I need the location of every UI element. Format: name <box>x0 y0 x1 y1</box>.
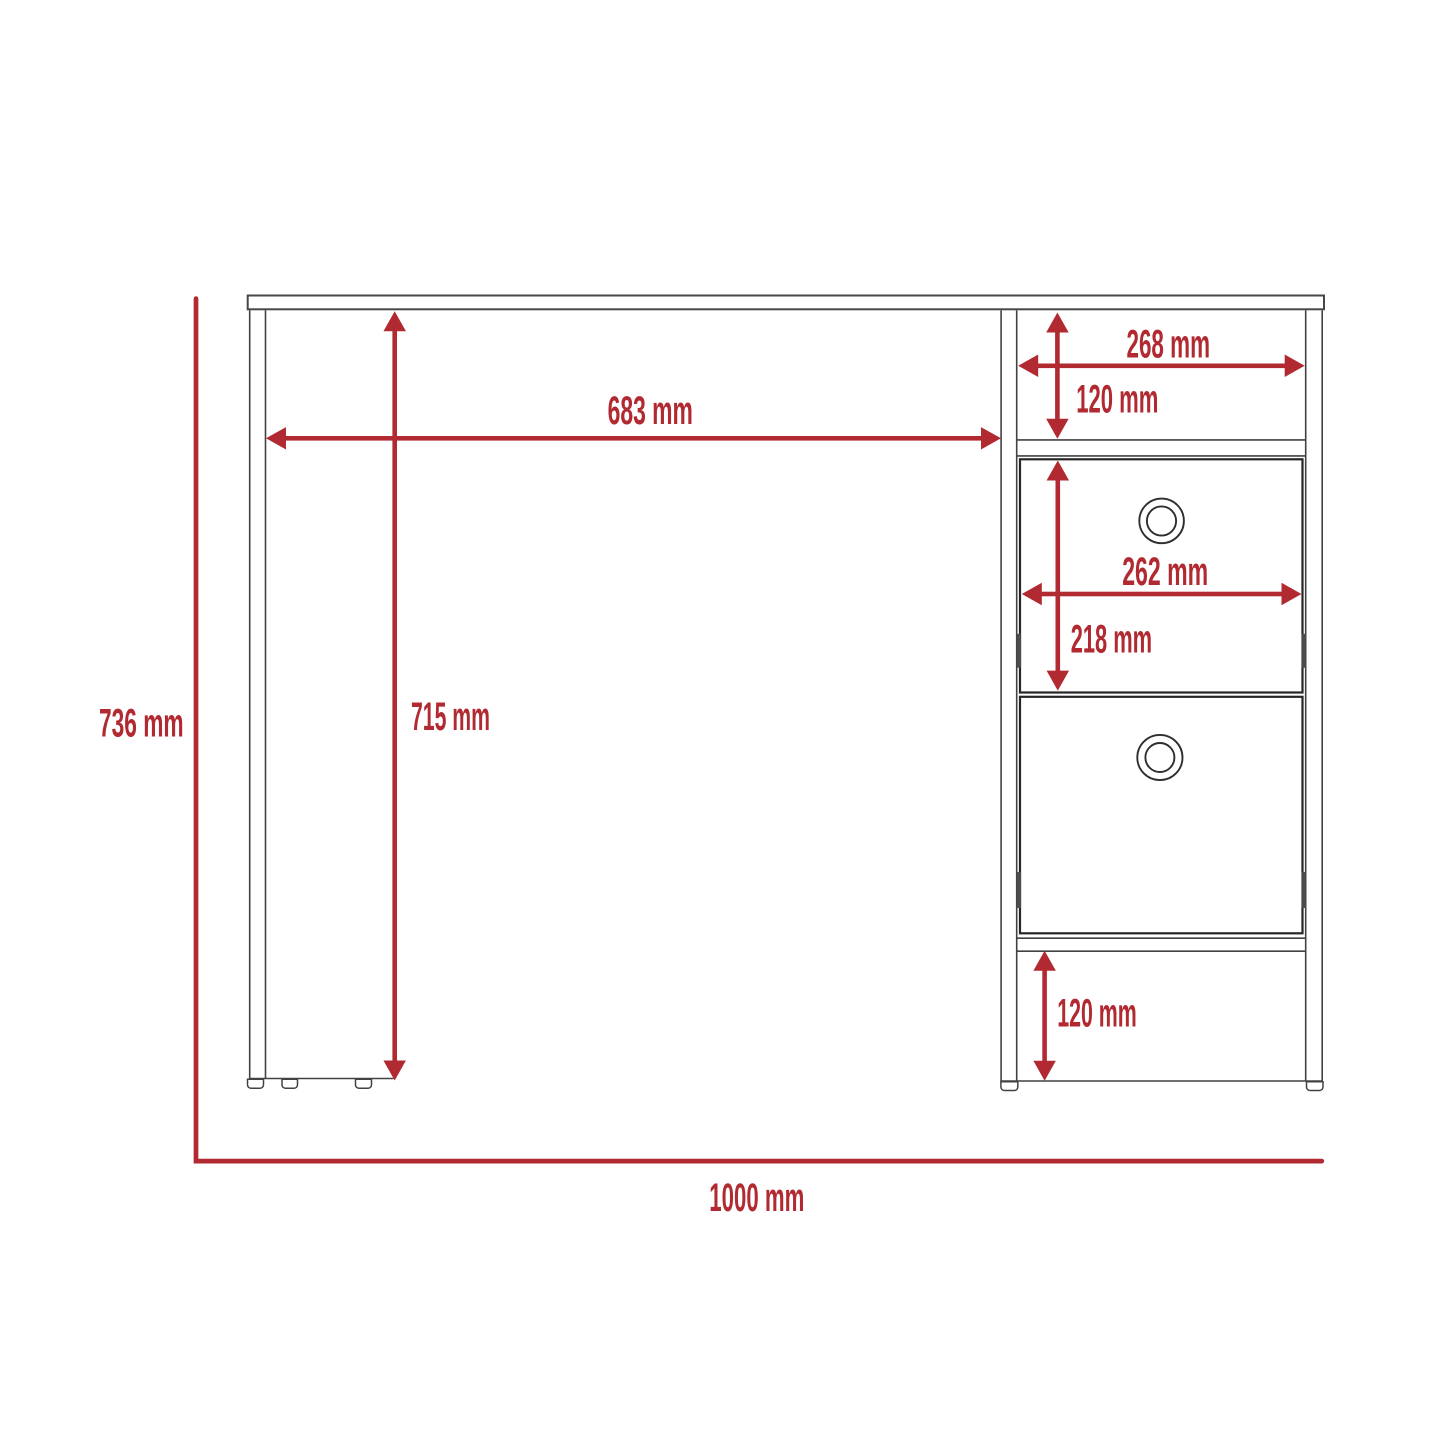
svg-text:736 mm: 736 mm <box>99 702 184 746</box>
svg-text:715 mm: 715 mm <box>411 695 490 739</box>
svg-text:120 mm: 120 mm <box>1057 992 1137 1036</box>
svg-text:218 mm: 218 mm <box>1071 618 1152 662</box>
svg-text:1000 mm: 1000 mm <box>709 1176 804 1220</box>
svg-text:120 mm: 120 mm <box>1076 378 1158 422</box>
svg-text:683 mm: 683 mm <box>608 389 693 433</box>
svg-text:268 mm: 268 mm <box>1127 323 1211 367</box>
svg-text:262 mm: 262 mm <box>1122 550 1208 594</box>
